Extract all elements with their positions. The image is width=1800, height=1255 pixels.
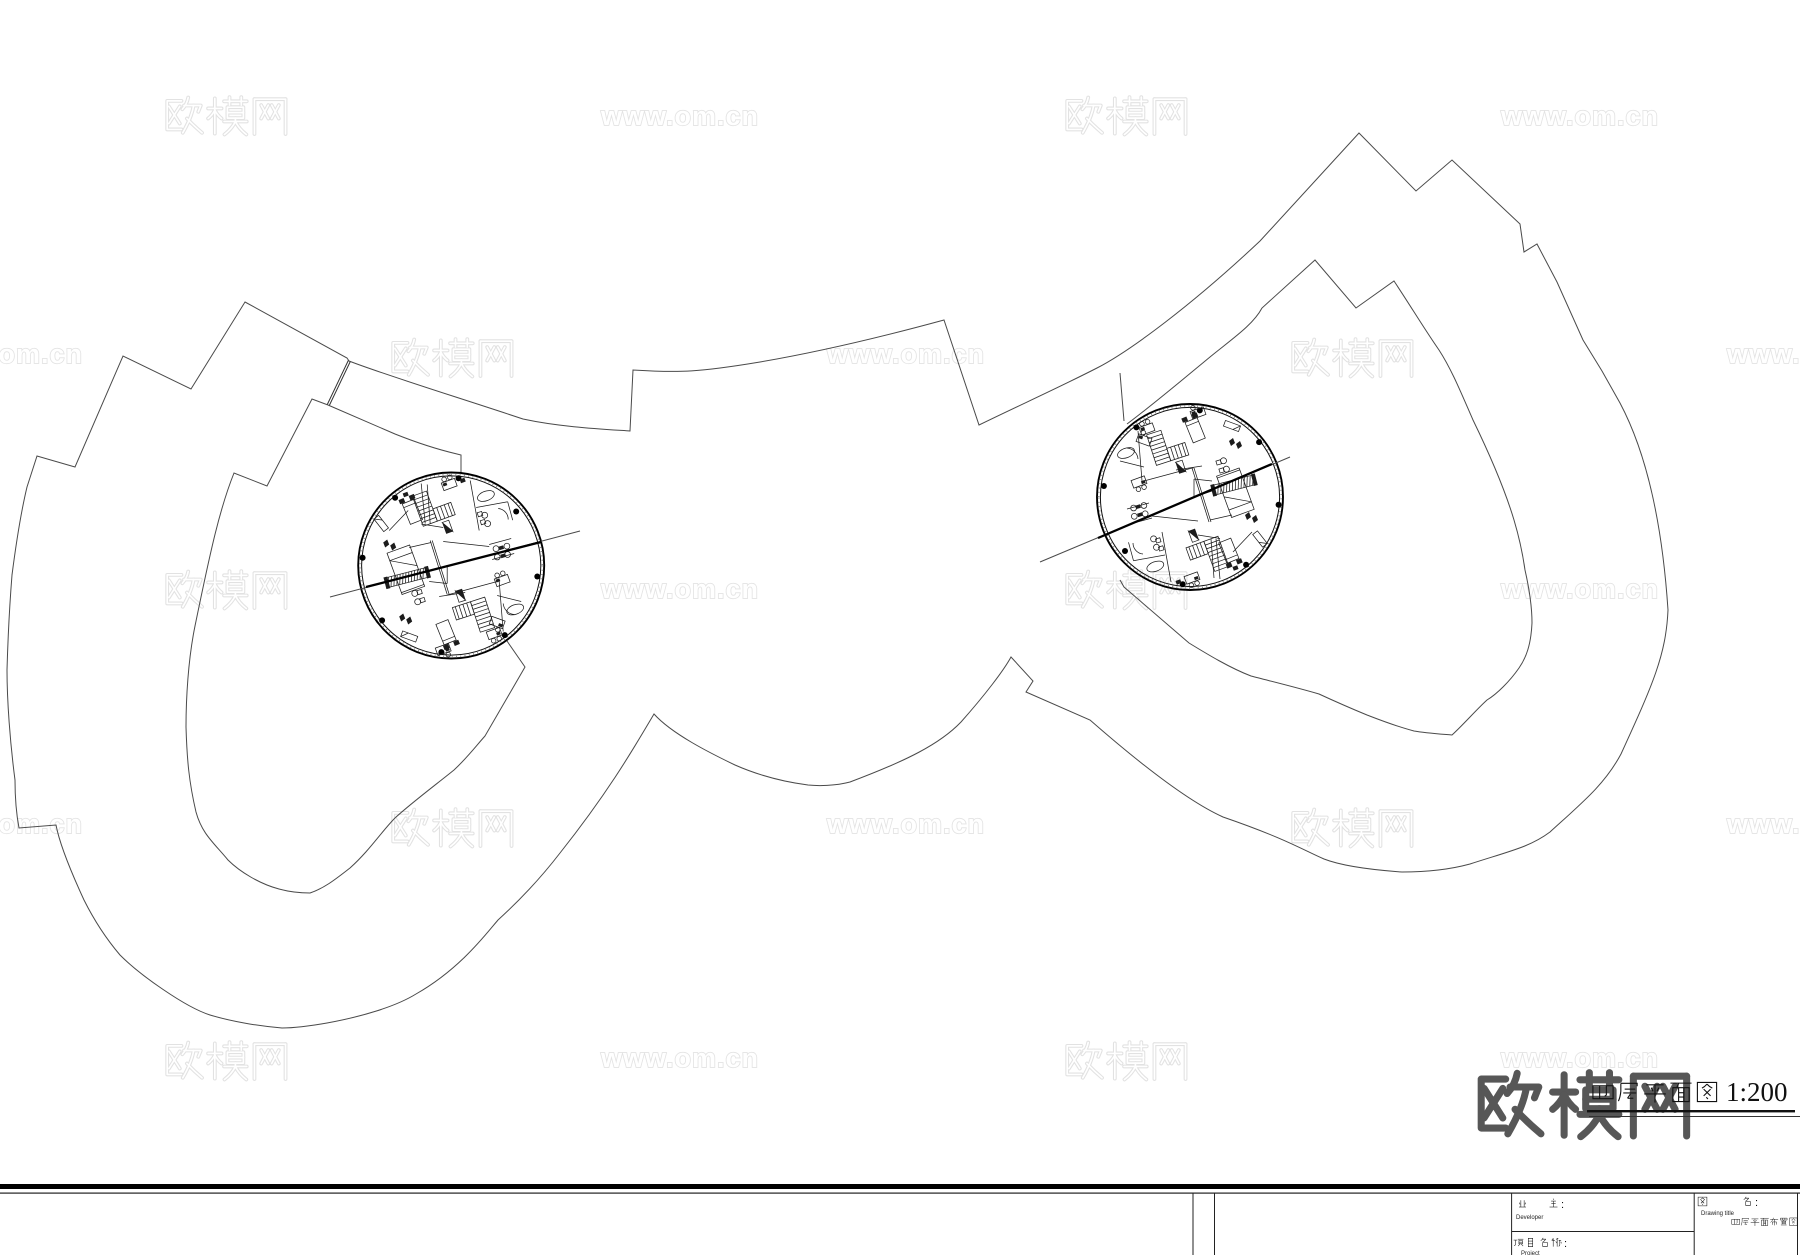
svg-text:www.om.cn: www.om.cn (600, 101, 759, 131)
svg-text:Project: Project (1521, 1251, 1540, 1255)
svg-text:www.om.cn: www.om.cn (1726, 809, 1800, 839)
svg-text:www.om.cn: www.om.cn (0, 339, 83, 369)
svg-text:www.om.cn: www.om.cn (1500, 574, 1659, 604)
svg-text:www.om.cn: www.om.cn (0, 809, 83, 839)
svg-text::: : (1564, 1238, 1567, 1250)
svg-text::: : (1561, 1199, 1564, 1211)
svg-text::: : (1755, 1197, 1758, 1209)
svg-text:www.om.cn: www.om.cn (1500, 1043, 1659, 1073)
svg-text:1:200: 1:200 (1726, 1077, 1788, 1107)
svg-text:www.om.cn: www.om.cn (600, 1043, 759, 1073)
svg-text:www.om.cn: www.om.cn (1726, 339, 1800, 369)
svg-text:Drawing title: Drawing title (1701, 1211, 1735, 1217)
svg-text:www.om.cn: www.om.cn (1500, 101, 1659, 131)
svg-text:Developer: Developer (1516, 1215, 1543, 1221)
svg-text:www.om.cn: www.om.cn (826, 809, 985, 839)
svg-text:www.om.cn: www.om.cn (600, 574, 759, 604)
